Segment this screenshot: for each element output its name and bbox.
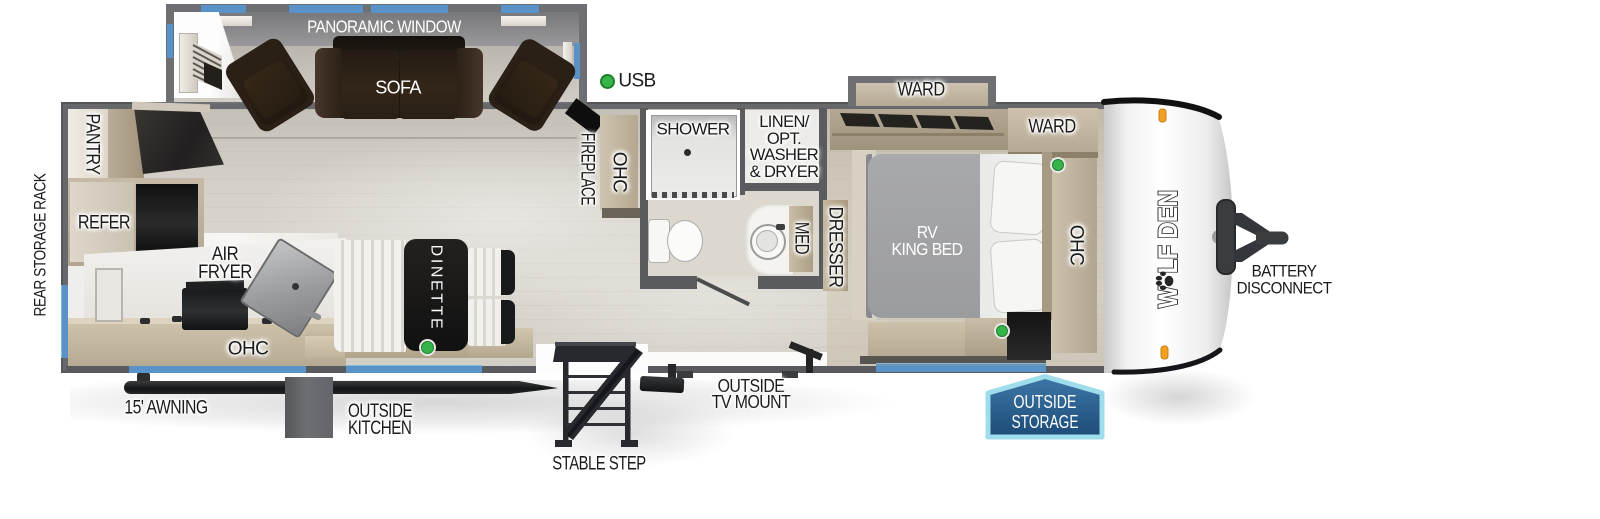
svg-text:W LF DEN: W LF DEN (1153, 190, 1183, 308)
svg-text:STORAGE: STORAGE (1012, 411, 1079, 432)
svg-text:OUTSIDE: OUTSIDE (1014, 391, 1077, 412)
